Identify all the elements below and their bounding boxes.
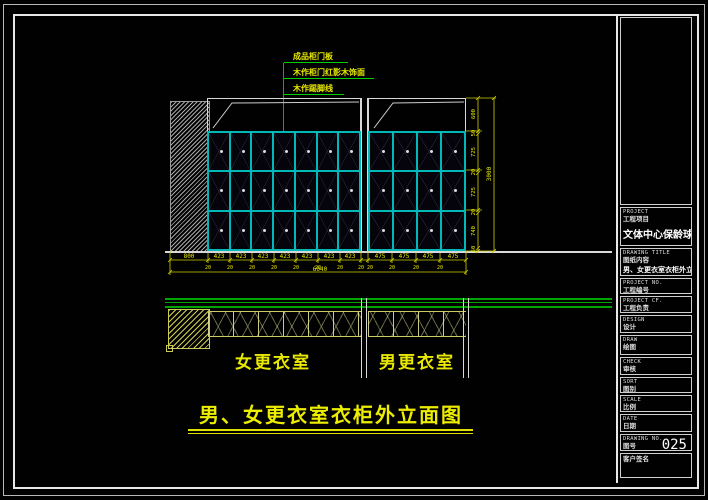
locker-cell xyxy=(318,172,338,209)
tb-cn-label: 客户签名 xyxy=(623,455,689,463)
callout-veneer: 木作柜门红影木饰面 xyxy=(284,68,374,79)
locker-cell xyxy=(231,172,251,209)
locker-grid-right xyxy=(368,131,466,251)
titleblock-date: DATE 日期 xyxy=(620,414,692,432)
locker-cell xyxy=(339,172,359,209)
plan-wall-line xyxy=(165,298,612,300)
dim-small-label: 20 xyxy=(249,265,255,271)
dim-label: 423 xyxy=(345,253,356,260)
locker-cell xyxy=(370,212,392,249)
tb-cn-label: 日期 xyxy=(623,422,689,430)
dim-label: 20 xyxy=(471,169,477,176)
dim-label: 475 xyxy=(375,253,386,260)
locker-cell xyxy=(231,212,251,249)
sloped-top-line xyxy=(369,99,465,130)
locker-cell xyxy=(274,212,294,249)
dim-total-label: 6040 xyxy=(313,266,328,273)
tb-cn-label: 工程项目 xyxy=(623,215,689,223)
dim-label: 725 xyxy=(471,147,477,157)
locker-cell xyxy=(442,172,464,209)
locker-cell xyxy=(274,172,294,209)
dim-label: 50 xyxy=(471,246,477,253)
dim-label: 423 xyxy=(214,253,225,260)
cad-sheet: 成品柜门板 木作柜门红影木饰面 木作踢脚线 800 423 423 423 42… xyxy=(0,0,708,500)
project-name: 文体中心保龄球馆 xyxy=(623,226,689,241)
dim-label: 423 xyxy=(302,253,313,260)
titleblock-drawing-title: DRAWING TITLE 图纸内容 男、女更衣室衣柜外立面图 xyxy=(620,248,692,276)
locker-cell xyxy=(231,133,251,170)
locker-cell xyxy=(252,172,272,209)
locker-cell xyxy=(209,172,229,209)
locker-cell xyxy=(296,212,316,249)
title-underline xyxy=(188,429,473,431)
dim-label: 475 xyxy=(448,253,459,260)
sheet-title: 男、女更衣室衣柜外立面图 xyxy=(185,399,477,428)
locker-cell xyxy=(394,133,416,170)
title-underline xyxy=(188,433,473,434)
dim-label: 800 xyxy=(184,253,195,260)
dim-small-label: 20 xyxy=(367,265,373,271)
tb-cn-label: 图纸内容 xyxy=(623,256,689,264)
titleblock-drawing-no: DRAWING NO. 图号 025 xyxy=(620,434,692,451)
dim-small-label: 20 xyxy=(293,265,299,271)
dim-small-label: 20 xyxy=(437,265,443,271)
callout-skirting: 木作踢脚线 xyxy=(284,84,344,95)
dim-label: 475 xyxy=(423,253,434,260)
titleblock-client-signature: 客户签名 xyxy=(620,453,692,478)
locker-cell xyxy=(296,133,316,170)
locker-cell xyxy=(418,212,440,249)
locker-cell xyxy=(442,133,464,170)
room-label-men: 男更衣室 xyxy=(362,348,472,373)
locker-cell xyxy=(418,172,440,209)
titleblock-project: PROJECT 工程项目 文体中心保龄球馆 xyxy=(620,207,692,246)
titleblock-project-no: PROJECT NO. 工程编号 xyxy=(620,278,692,294)
locker-cell xyxy=(418,133,440,170)
titleblock-draw: DRAW 绘图 xyxy=(620,335,692,355)
dim-label: 740 xyxy=(471,226,477,236)
dim-label: 423 xyxy=(236,253,247,260)
column-hatch-elevation xyxy=(170,101,210,253)
dim-label: 20 xyxy=(471,209,477,216)
dim-small-label: 20 xyxy=(337,265,343,271)
dim-label: 50 xyxy=(471,130,477,137)
titleblock-check: CHECK 审核 xyxy=(620,357,692,375)
dim-small-label: 20 xyxy=(205,265,211,271)
locker-cell xyxy=(394,212,416,249)
bottom-dimension-strip: 800 423 423 423 423 423 423 423 475 475 … xyxy=(160,250,505,280)
locker-cell xyxy=(370,172,392,209)
plan-corner-notch xyxy=(166,345,173,352)
cabinet-top-band-right xyxy=(368,98,466,131)
tb-cn-label: 设计 xyxy=(623,323,689,331)
dim-label: 475 xyxy=(399,253,410,260)
locker-cell xyxy=(209,133,229,170)
tb-cn-label: 工程编号 xyxy=(623,286,689,294)
dim-label: 600 xyxy=(471,109,477,119)
drawing-number: 025 xyxy=(662,437,687,451)
dim-label: 423 xyxy=(258,253,269,260)
dim-label: 423 xyxy=(280,253,291,260)
cabinet-plan-right xyxy=(368,311,466,337)
dim-small-label: 20 xyxy=(227,265,233,271)
locker-cell xyxy=(394,172,416,209)
titleblock-design: DESIGN 设计 xyxy=(620,315,692,333)
sloped-top-line xyxy=(208,99,360,130)
locker-cell xyxy=(296,172,316,209)
locker-cell xyxy=(209,212,229,249)
locker-cell xyxy=(252,212,272,249)
unit-gap-wall xyxy=(361,98,368,251)
tb-cn-label: 工程负责 xyxy=(623,304,689,312)
locker-cell xyxy=(339,212,359,249)
dim-label: 423 xyxy=(324,253,335,260)
plan-wall-line xyxy=(165,306,612,308)
drawing-title-value: 男、女更衣室衣柜外立面图 xyxy=(623,265,689,275)
titleblock-scale: SCALE 比例 xyxy=(620,395,692,412)
locker-cell xyxy=(339,133,359,170)
column-hatch-plan xyxy=(168,309,210,349)
cabinet-plan-left xyxy=(208,311,361,337)
locker-cell xyxy=(442,212,464,249)
tb-cn-label: 比例 xyxy=(623,403,689,411)
dim-small-label: 20 xyxy=(413,265,419,271)
tb-cn-label: 审核 xyxy=(623,365,689,373)
cabinet-top-band-left xyxy=(207,98,361,131)
locker-cell xyxy=(252,133,272,170)
room-label-women: 女更衣室 xyxy=(218,348,328,373)
locker-grid-left xyxy=(207,131,361,251)
locker-cell xyxy=(370,133,392,170)
titleblock-divider-line xyxy=(616,16,618,483)
right-dimension-strip: 600 50 725 20 725 20 740 50 3000 xyxy=(466,92,508,262)
locker-cell xyxy=(274,133,294,170)
dim-label: 725 xyxy=(471,187,477,197)
dim-total-label: 3000 xyxy=(486,166,493,181)
tb-cn-label: 图别 xyxy=(623,385,689,393)
callout-door-panel: 成品柜门板 xyxy=(284,52,348,63)
titleblock-project-cf: PROJECT CF. 工程负责 xyxy=(620,296,692,313)
dim-small-label: 20 xyxy=(271,265,277,271)
locker-cell xyxy=(318,133,338,170)
tb-cn-label: 绘图 xyxy=(623,343,689,351)
titleblock-empty-box xyxy=(620,17,692,205)
titleblock-sort: SORT 图别 xyxy=(620,377,692,393)
dim-small-label: 20 xyxy=(389,265,395,271)
locker-cell xyxy=(318,212,338,249)
plan-wall-line xyxy=(165,302,612,303)
dim-small-label: 20 xyxy=(358,265,364,271)
